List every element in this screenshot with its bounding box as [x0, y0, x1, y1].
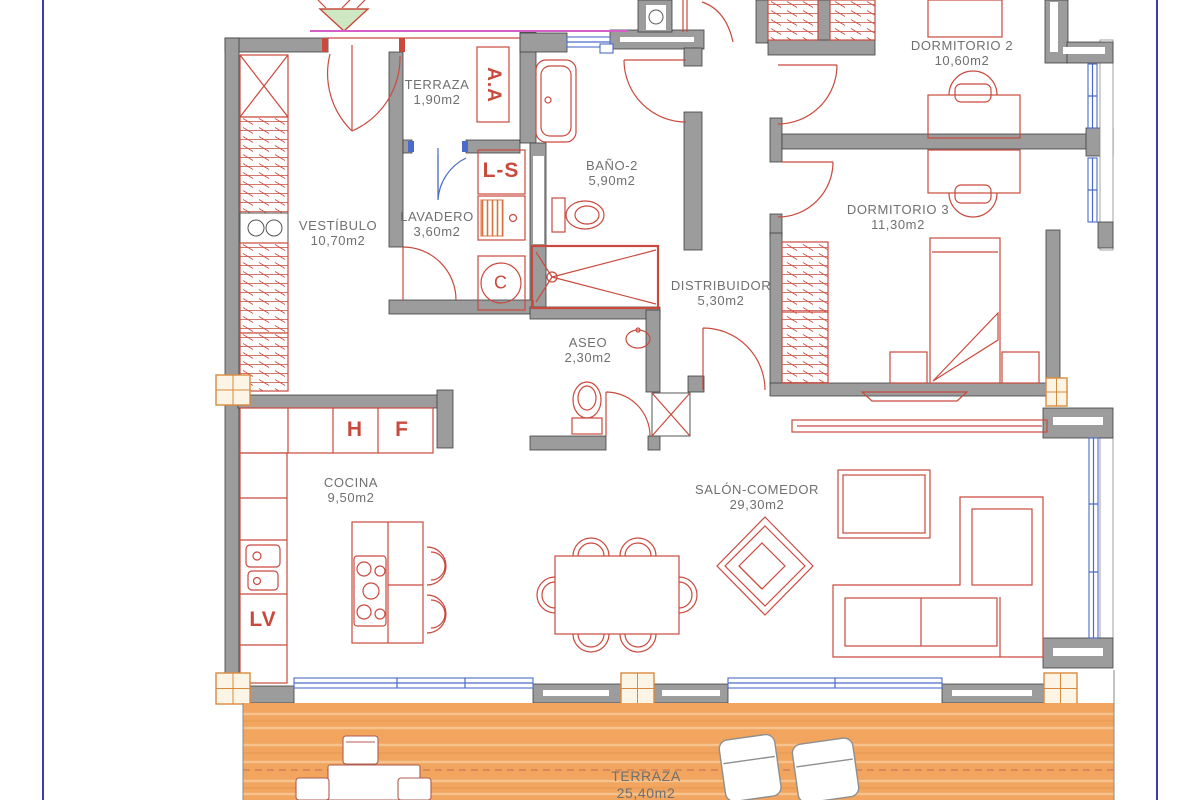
vestibulo-closets: [240, 55, 288, 391]
room-name: TERRAZA: [405, 77, 470, 92]
room-area: 1,90m2: [405, 92, 470, 107]
oven-label: H: [347, 418, 363, 442]
entrance-arrow-marker: [310, 0, 628, 38]
wc-toilet: [649, 10, 663, 24]
room-area: 5,30m2: [671, 293, 771, 308]
room-name: ASEO: [565, 335, 612, 350]
dorm3-window: [1088, 158, 1097, 222]
room-name: DISTRIBUIDOR: [671, 278, 771, 293]
dorm3-furniture: [782, 150, 1039, 401]
dishwasher-label: LV: [249, 608, 276, 632]
salon-side-window: [1089, 438, 1098, 638]
aseo-door: [606, 392, 650, 436]
washer-dryer-label: L-S: [483, 159, 520, 183]
room-name: COCINA: [324, 475, 378, 490]
sun-lounger: [791, 737, 860, 800]
room-name: DORMITORIO 2: [911, 38, 1013, 53]
dorm3-door: [778, 162, 833, 217]
air-conditioning-label: A.A: [482, 67, 504, 103]
floor-plan-canvas: TERRAZA 1,90m2 VESTÍBULO 10,70m2 LAVADER…: [0, 0, 1200, 800]
room-area: 10,60m2: [911, 53, 1013, 68]
room-area: 25,40m2: [611, 785, 681, 800]
room-name: LAVADERO: [400, 209, 474, 224]
room-name: BAÑO-2: [586, 158, 638, 173]
room-label-cocina: COCINA 9,50m2: [324, 475, 378, 505]
column: [1046, 378, 1067, 406]
room-area: 2,30m2: [565, 350, 612, 365]
room-name: VESTÍBULO: [299, 218, 377, 233]
fridge-label: F: [395, 418, 409, 442]
dorm2-window: [1088, 64, 1097, 128]
sun-lounger: [718, 733, 782, 800]
room-label-dormitorio3: DORMITORIO 3 11,30m2: [847, 202, 949, 232]
room-area: 11,30m2: [847, 217, 949, 232]
column: [621, 673, 654, 704]
room-label-salon: SALÓN-COMEDOR 29,30m2: [695, 482, 819, 512]
room-label-dormitorio2: DORMITORIO 2 10,60m2: [911, 38, 1013, 68]
column: [216, 375, 250, 405]
column: [1044, 673, 1077, 704]
room-name: TERRAZA: [611, 768, 681, 785]
column: [216, 673, 250, 704]
vestibulo-kitchen-door: [403, 247, 456, 300]
room-label-distribuidor: DISTRIBUIDOR 5,30m2: [671, 278, 771, 308]
room-name: DORMITORIO 3: [847, 202, 949, 217]
room-label-lavadero: LAVADERO 3,60m2: [400, 209, 474, 239]
room-label-aseo: ASEO 2,30m2: [565, 335, 612, 365]
room-area: 9,50m2: [324, 490, 378, 505]
room-area: 10,70m2: [299, 233, 377, 248]
bath2-door: [624, 60, 686, 122]
salon-door: [703, 328, 765, 390]
kitchen-fittings: [240, 408, 446, 683]
room-area: 3,60m2: [400, 224, 474, 239]
room-label-bano2: BAÑO-2 5,90m2: [586, 158, 638, 188]
room-area: 5,90m2: [586, 173, 638, 188]
living-dining-furniture: [537, 420, 1047, 657]
wc-window: [600, 44, 613, 53]
room-label-vestibulo: VESTÍBULO 10,70m2: [299, 218, 377, 248]
room-area: 29,30m2: [695, 497, 819, 512]
boiler-label: C: [494, 273, 508, 294]
salon-front-window-left: [294, 678, 533, 688]
salon-front-window-right: [728, 678, 942, 688]
room-name: SALÓN-COMEDOR: [695, 482, 819, 497]
dorm2-door: [778, 65, 837, 124]
room-label-terraza-bottom: TERRAZA 25,40m2: [611, 768, 681, 800]
room-label-terraza-top: TERRAZA 1,90m2: [405, 77, 470, 107]
floor-plan-drawing: [0, 0, 1200, 800]
